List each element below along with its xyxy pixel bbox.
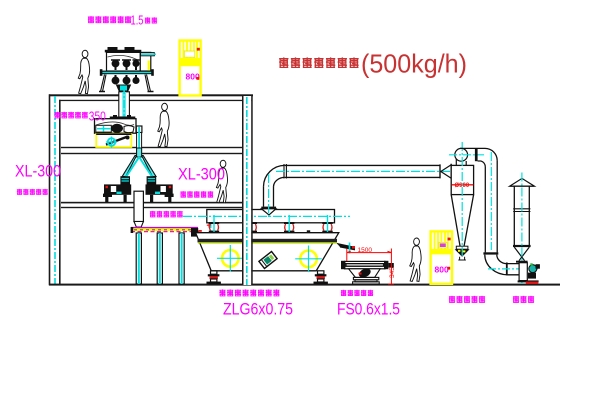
svg-text:(500kg/h): (500kg/h)	[361, 49, 467, 79]
svg-text:345: 345	[389, 267, 396, 278]
svg-text:1.5: 1.5	[131, 14, 144, 28]
svg-text:800: 800	[186, 72, 200, 82]
svg-text:800: 800	[435, 265, 449, 275]
svg-text:1500: 1500	[358, 247, 373, 254]
svg-text:ZLG6x0.75: ZLG6x0.75	[223, 301, 293, 319]
svg-text:XL-300: XL-300	[15, 162, 61, 181]
svg-text:FS0.6x1.5: FS0.6x1.5	[337, 301, 400, 319]
svg-text:XL-300: XL-300	[178, 165, 225, 184]
svg-text:350: 350	[89, 110, 106, 124]
